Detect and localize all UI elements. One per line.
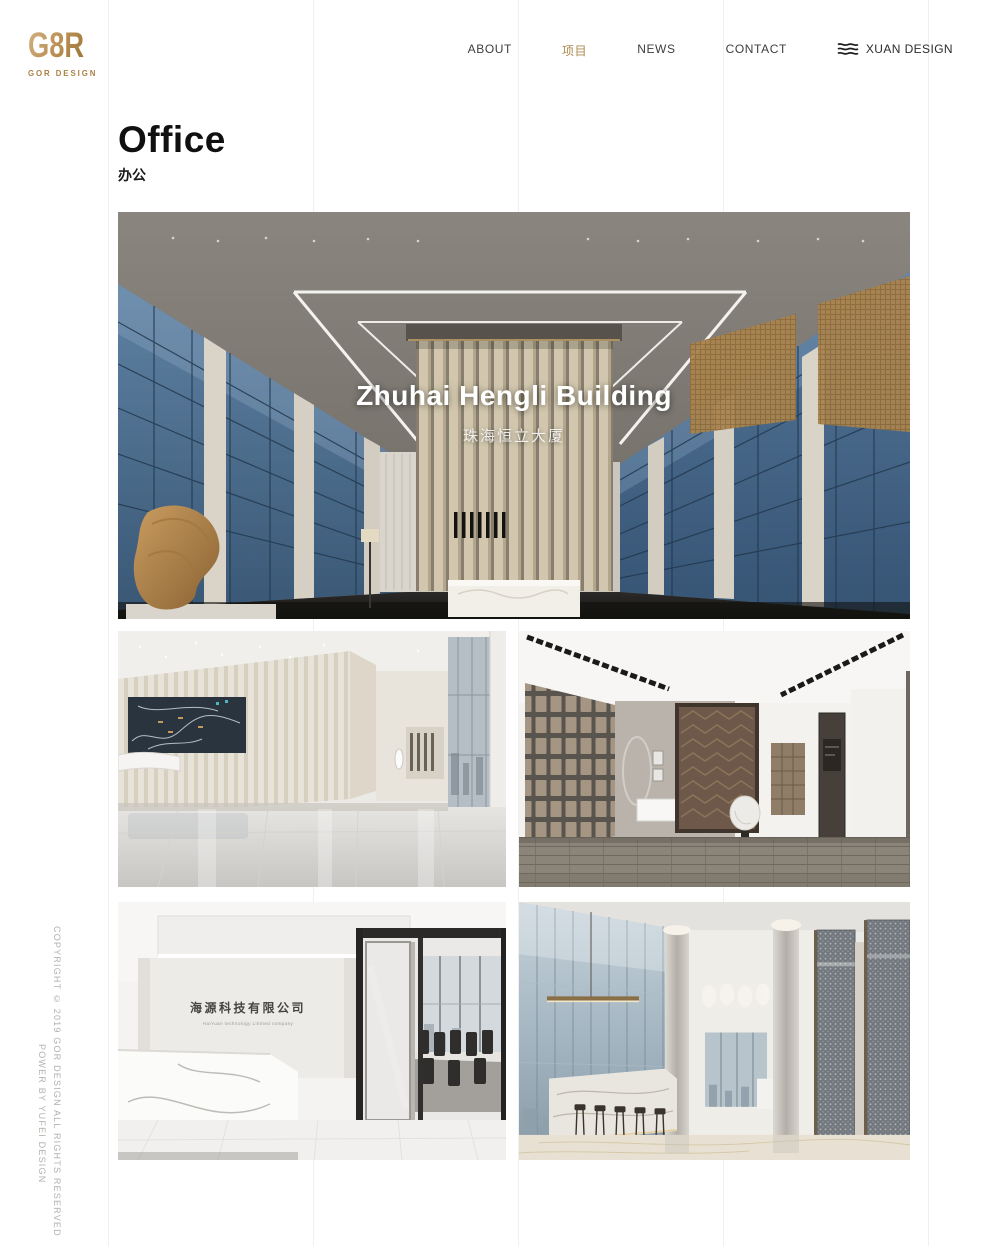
page-head: Office 办公 xyxy=(118,121,226,185)
project-thumb-haiyuan-reception[interactable]: 海源科技有限公司 HaiYuan technology Limited comp… xyxy=(118,902,506,1160)
logo-tagline: GOR DESIGN xyxy=(28,68,97,78)
grid-line xyxy=(928,0,929,1246)
nav-item-projects[interactable]: 项目 xyxy=(562,42,587,59)
partner-label: XUAN DESIGN xyxy=(866,42,953,56)
footer-credit: POWER BY YUFEI DESIGN xyxy=(37,1044,47,1183)
thumb-image-1 xyxy=(118,631,506,887)
thumb-image-3: 海源科技有限公司 HaiYuan technology Limited comp… xyxy=(118,902,506,1160)
footer-copyright: COPYRIGHT © 2019 GOR DESIGN ALL RIGHTS R… xyxy=(52,926,62,1237)
project-thumb-lobby-map-wall[interactable] xyxy=(118,631,506,887)
main-nav: ABOUT 项目 NEWS CONTACT XUAN DESIGN xyxy=(468,42,953,59)
project-thumb-material-showroom[interactable] xyxy=(519,631,910,887)
logo-text: G8R xyxy=(28,28,84,63)
hero-image xyxy=(118,212,910,619)
project-thumb-tall-glass-lobby[interactable] xyxy=(519,902,910,1160)
reception-sign-subtext: HaiYuan technology Limited company xyxy=(203,1021,294,1026)
nav-item-about[interactable]: ABOUT xyxy=(468,42,512,56)
waves-icon xyxy=(837,42,859,56)
logo[interactable]: G8R GOR DESIGN xyxy=(28,28,103,81)
page-title: Office xyxy=(118,121,226,158)
nav-item-contact[interactable]: CONTACT xyxy=(726,42,787,56)
project-hero-zhuhai-hengli[interactable]: Zhuhai Hengli Building 珠海恒立大厦 xyxy=(118,212,910,619)
reception-sign-text: 海源科技有限公司 xyxy=(190,1000,306,1015)
nav-item-news[interactable]: NEWS xyxy=(637,42,675,56)
thumb-image-4 xyxy=(519,902,910,1160)
grid-line xyxy=(108,0,109,1246)
thumb-image-2 xyxy=(519,631,910,887)
page-subtitle: 办公 xyxy=(118,165,226,185)
nav-item-xuan-design[interactable]: XUAN DESIGN xyxy=(837,42,953,56)
